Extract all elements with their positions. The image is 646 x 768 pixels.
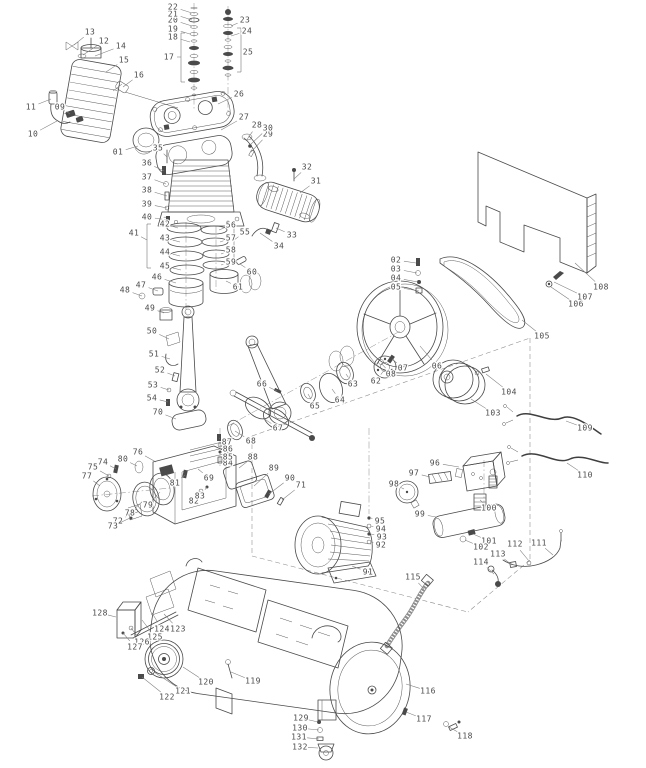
part-label-52: 52 [155, 366, 165, 375]
pressure-switch [455, 452, 505, 491]
part-label-65: 65 [310, 402, 320, 411]
caster-stack [317, 720, 334, 760]
part-label-57: 57 [226, 234, 236, 243]
part-label-16: 16 [134, 71, 144, 80]
leader-line-35 [164, 154, 167, 157]
part-label-38: 38 [142, 186, 152, 195]
part-label-06: 06 [432, 362, 442, 371]
part-label-92: 92 [376, 541, 386, 550]
part-label-76: 76 [133, 448, 143, 457]
part-label-36: 36 [142, 159, 152, 168]
leader-line-103 [471, 399, 486, 409]
part-label-22: 22 [168, 3, 178, 12]
part-label-03: 03 [391, 265, 401, 274]
leader-line-94 [371, 526, 373, 527]
part-label-07: 07 [398, 364, 408, 373]
leader-line-111 [545, 548, 553, 555]
part-label-123: 123 [170, 625, 186, 634]
part-label-118: 118 [457, 732, 473, 741]
part-label-105: 105 [534, 332, 550, 341]
leader-line-19 [181, 31, 190, 34]
part-label-64: 64 [335, 396, 345, 405]
leader-line-69 [198, 469, 203, 473]
part-label-75: 75 [88, 463, 98, 472]
leader-line-100 [480, 500, 483, 503]
leader-line-120 [183, 667, 199, 678]
tank-legs [216, 688, 336, 720]
leader-line-06 [420, 346, 432, 360]
part-label-09: 09 [55, 103, 65, 112]
part-label-85: 85 [223, 453, 233, 462]
leader-line-10 [40, 121, 57, 130]
leader-line-43 [173, 240, 180, 242]
part-label-77: 77 [82, 472, 92, 481]
bearing-shells [240, 272, 354, 371]
leader-line-90 [269, 483, 284, 494]
part-label-97: 97 [409, 469, 419, 478]
leader-line-49 [158, 311, 164, 313]
part-label-40: 40 [142, 213, 152, 222]
leader-line-34 [260, 233, 272, 241]
part-label-95: 95 [375, 517, 385, 526]
leader-line-23 [231, 23, 238, 26]
leader-line-63 [346, 374, 348, 377]
part-label-27: 27 [239, 113, 249, 122]
part-label-110: 110 [577, 471, 593, 480]
pressure-gauge [396, 481, 419, 508]
part-label-62: 62 [371, 377, 381, 386]
part-label-10: 10 [28, 130, 38, 139]
tank [143, 563, 416, 739]
connecting-rod-left [177, 306, 199, 411]
part-label-44: 44 [160, 248, 170, 257]
part-label-59: 59 [226, 258, 236, 267]
leader-line-31 [300, 186, 310, 193]
part-label-39: 39 [142, 200, 152, 209]
leader-line-76 [145, 456, 156, 462]
part-label-37: 37 [142, 173, 152, 182]
part-label-109: 109 [577, 424, 593, 433]
part-label-41: 41 [129, 229, 139, 238]
part-label-04: 04 [391, 274, 401, 283]
part-label-115: 115 [405, 573, 421, 582]
part-label-128: 128 [92, 609, 108, 618]
part-label-51: 51 [149, 350, 159, 359]
valve-stack-left [181, 8, 200, 96]
part-label-49: 49 [145, 304, 155, 313]
leader-line-13 [74, 37, 84, 45]
leader-line-108 [575, 263, 595, 282]
part-label-91: 91 [363, 568, 373, 577]
leader-line-29 [251, 140, 263, 152]
leader-line-12 [83, 45, 97, 55]
part-label-24: 24 [242, 27, 252, 36]
leader-line-61 [226, 281, 231, 283]
platform-sheets [186, 559, 348, 668]
part-label-122: 122 [159, 693, 175, 702]
part-label-103: 103 [485, 409, 501, 418]
leader-line-32 [294, 172, 301, 179]
decal-box [117, 602, 141, 638]
leader-line-50 [159, 334, 169, 339]
part-label-50: 50 [147, 327, 157, 336]
part-label-30: 30 [263, 124, 273, 133]
part-label-05: 05 [391, 283, 401, 292]
part-label-117: 117 [416, 715, 432, 724]
part-label-19: 19 [168, 25, 178, 34]
part-label-112: 112 [507, 540, 523, 549]
part-label-18: 18 [168, 33, 178, 42]
leader-line-77 [93, 481, 100, 486]
leader-line-22 [181, 9, 192, 13]
part-labels: 0102030405060708091011121314151617181920… [26, 3, 609, 752]
power-cables [503, 405, 609, 465]
part-label-96: 96 [430, 459, 440, 468]
leader-line-112 [520, 550, 529, 561]
part-label-83: 83 [195, 492, 205, 501]
leader-line-03 [404, 270, 417, 273]
leader-line-106 [551, 287, 569, 300]
part-label-42: 42 [160, 220, 170, 229]
leader-line-65 [308, 394, 311, 399]
part-label-25: 25 [243, 48, 253, 57]
leader-line-93 [371, 534, 374, 535]
part-label-93: 93 [377, 533, 387, 542]
bracket-plates [146, 571, 176, 615]
part-label-13: 13 [85, 28, 95, 37]
part-label-119: 119 [245, 677, 261, 686]
part-label-100: 100 [481, 504, 497, 513]
part-label-23: 23 [240, 16, 250, 25]
cylinder [158, 160, 244, 226]
part-label-131: 131 [291, 733, 307, 742]
reducer-nipple [429, 472, 452, 484]
piston-rings-left [147, 223, 204, 275]
diagram-svg: 0102030405060708091011121314151617181920… [0, 0, 646, 768]
part-label-47: 47 [136, 281, 146, 290]
part-label-26: 26 [234, 90, 244, 99]
part-label-127: 127 [127, 643, 143, 652]
v-belt [440, 257, 525, 328]
part-label-116: 116 [420, 687, 436, 696]
part-label-88: 88 [248, 453, 258, 462]
leader-line-02 [404, 261, 416, 263]
part-label-45: 45 [160, 262, 170, 271]
part-label-12: 12 [99, 37, 109, 46]
part-label-34: 34 [274, 242, 284, 251]
part-label-108: 108 [593, 283, 609, 292]
part-label-15: 15 [119, 56, 129, 65]
part-label-129: 129 [293, 714, 309, 723]
part-label-54: 54 [147, 394, 157, 403]
part-label-67: 67 [273, 424, 283, 433]
part-label-17: 17 [164, 53, 174, 62]
part-label-81: 81 [170, 479, 180, 488]
part-label-98: 98 [389, 480, 399, 489]
cylinder-head [148, 89, 237, 139]
part-label-74: 74 [98, 458, 108, 467]
part-label-94: 94 [376, 525, 386, 534]
part-label-102: 102 [473, 543, 489, 552]
part-label-66: 66 [257, 380, 267, 389]
assembly-axis-lines [92, 3, 530, 612]
part-label-68: 68 [246, 437, 256, 446]
part-label-70: 70 [153, 408, 163, 417]
leader-line-44 [173, 254, 180, 256]
leader-line-124 [152, 613, 158, 622]
leader-line-56 [219, 228, 224, 230]
air-filter [60, 38, 130, 144]
guard-screw [546, 271, 564, 287]
part-label-80: 80 [118, 455, 128, 464]
discharge-hose [380, 574, 433, 654]
part-label-32: 32 [302, 163, 312, 172]
aftercooler-bolts [252, 168, 296, 236]
part-label-111: 111 [531, 539, 547, 548]
part-label-56: 56 [226, 221, 236, 230]
part-label-89: 89 [269, 464, 279, 473]
part-label-114: 114 [473, 558, 489, 567]
leader-line-46 [165, 279, 176, 283]
crankcase-hardware [182, 434, 222, 493]
leader-line-99 [428, 515, 436, 517]
belt-guard-grille [478, 152, 596, 273]
part-label-63: 63 [348, 380, 358, 389]
part-label-02: 02 [391, 256, 401, 265]
leader-line-122 [142, 677, 161, 692]
leader-line-42 [173, 226, 178, 228]
leader-line-60 [240, 264, 245, 268]
part-label-90: 90 [285, 474, 295, 483]
leader-line-18 [181, 39, 190, 42]
part-label-55: 55 [240, 228, 250, 237]
leader-line-14 [95, 49, 114, 56]
aftercooler [253, 179, 323, 225]
part-label-61: 61 [233, 283, 243, 292]
part-label-69: 69 [204, 474, 214, 483]
part-label-43: 43 [160, 234, 170, 243]
part-label-08: 08 [386, 370, 396, 379]
valve-stack-right [223, 9, 242, 76]
part-label-130: 130 [292, 724, 308, 733]
leader-line-75 [100, 471, 109, 476]
part-label-104: 104 [501, 388, 517, 397]
part-label-132: 132 [292, 743, 308, 752]
part-label-33: 33 [287, 231, 297, 240]
leader-line-132 [308, 747, 318, 748]
part-label-73: 73 [108, 522, 118, 531]
leader-line-41 [141, 237, 147, 240]
part-label-99: 99 [415, 510, 425, 519]
part-label-87: 87 [222, 438, 232, 447]
part-label-48: 48 [120, 286, 130, 295]
leader-line-119 [231, 672, 246, 678]
leader-line-104 [486, 374, 503, 387]
part-label-113: 113 [490, 550, 506, 559]
part-label-11: 11 [26, 103, 36, 112]
leader-line-57 [220, 241, 223, 242]
exploded-diagram-page: 0102030405060708091011121314151617181920… [0, 0, 646, 768]
leader-line-59 [221, 264, 223, 265]
leader-line-96 [443, 464, 459, 467]
part-label-107: 107 [577, 293, 593, 302]
leader-line-127 [123, 633, 130, 641]
connecting-rod-right [246, 336, 291, 424]
part-label-28: 28 [252, 121, 262, 130]
part-label-120: 120 [198, 678, 214, 687]
part-label-01: 01 [113, 148, 123, 157]
leader-line-109 [566, 421, 577, 425]
leader-line-98 [401, 488, 404, 489]
leader-line-117 [406, 712, 417, 716]
leader-line-116 [406, 684, 420, 689]
part-label-53: 53 [148, 381, 158, 390]
leader-line-20 [181, 22, 192, 26]
leader-line-58 [221, 253, 224, 254]
part-label-79: 79 [143, 501, 153, 510]
part-label-78: 78 [125, 509, 135, 518]
part-label-121: 121 [175, 687, 191, 696]
leader-line-15 [106, 64, 117, 72]
leader-line-71 [282, 490, 295, 500]
leader-line-26 [218, 97, 232, 104]
leader-line-110 [567, 463, 578, 471]
part-label-35: 35 [153, 144, 163, 153]
leader-line-45 [173, 268, 181, 270]
part-label-71: 71 [296, 481, 306, 490]
part-label-46: 46 [152, 273, 162, 282]
part-label-14: 14 [116, 42, 126, 51]
leader-line-07 [392, 359, 397, 363]
leader-line-128 [108, 615, 116, 617]
part-label-60: 60 [247, 268, 257, 277]
leader-line-92 [371, 542, 373, 543]
part-label-58: 58 [226, 246, 236, 255]
leader-line-129 [309, 720, 318, 722]
part-label-31: 31 [311, 177, 321, 186]
flywheel-hardware [416, 258, 423, 293]
leader-line-64 [332, 389, 335, 394]
